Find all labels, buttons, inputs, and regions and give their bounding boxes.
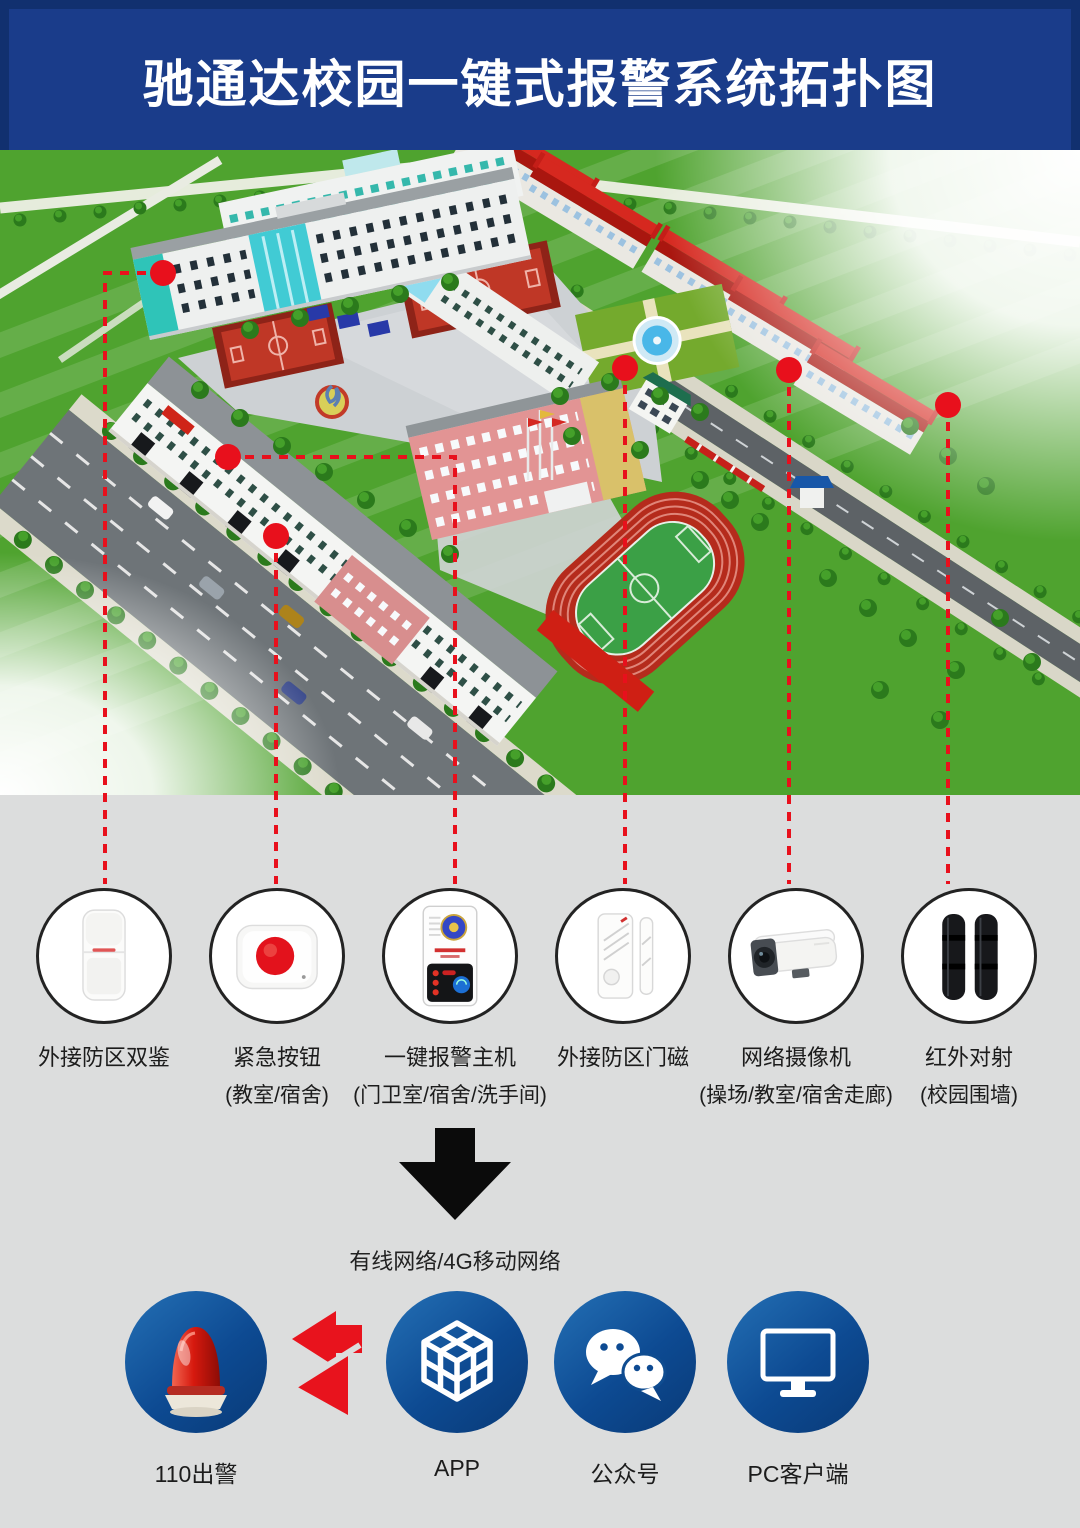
device-sublabel: (门卫室/宿舍/洗手间) xyxy=(353,1079,547,1109)
statue xyxy=(317,386,347,417)
device-label: 外接防区双鉴 xyxy=(38,1040,170,1072)
device-row: 外接防区双鉴 紧急按钮 (教室/宿舍) xyxy=(36,888,1037,1109)
device-sublabel: (校园围墙) xyxy=(920,1079,1018,1109)
device-circle xyxy=(209,888,345,1024)
network-label: 有线网络/4G移动网络 xyxy=(349,1244,560,1276)
device-label: 紧急按钮 xyxy=(233,1040,321,1072)
device-card-alarm-host: 一键报警主机 (门卫室/宿舍/洗手间) xyxy=(382,888,518,1109)
device-label: 网络摄像机 xyxy=(741,1040,851,1072)
infrared-beam-icon xyxy=(904,888,1034,1024)
device-card-infrared-beam: 红外对射 (校园围墙) xyxy=(901,888,1037,1109)
network-camera-icon xyxy=(731,888,861,1024)
page-title: 驰通达校园一键式报警系统拓扑图 xyxy=(142,43,937,117)
door-magnet-icon xyxy=(558,888,688,1024)
pir-detector-icon xyxy=(39,888,169,1024)
device-card-panic-button: 紧急按钮 (教室/宿舍) xyxy=(209,888,345,1109)
panic-button-icon xyxy=(212,888,342,1024)
wechat-icon xyxy=(554,1291,696,1433)
output-pc-client: PC客户端 xyxy=(727,1291,869,1489)
device-label: 一键报警主机 xyxy=(384,1040,516,1072)
device-circle xyxy=(555,888,691,1024)
device-circle xyxy=(728,888,864,1024)
device-card-network-camera: 网络摄像机 (操场/教室/宿舍走廊) xyxy=(728,888,864,1109)
device-sublabel: (教室/宿舍) xyxy=(225,1079,329,1109)
device-label: 外接防区门磁 xyxy=(557,1040,689,1072)
output-label: 110出警 xyxy=(155,1455,238,1489)
output-label: 公众号 xyxy=(591,1455,660,1489)
header-band: 驰通达校园一键式报警系统拓扑图 xyxy=(0,0,1080,150)
output-circle xyxy=(386,1291,528,1433)
device-circle xyxy=(382,888,518,1024)
output-label: PC客户端 xyxy=(748,1455,849,1489)
device-circle xyxy=(901,888,1037,1024)
app-cube-icon xyxy=(386,1291,528,1433)
pc-monitor-icon xyxy=(727,1291,869,1433)
output-circle xyxy=(727,1291,869,1433)
alarm-beacon-icon xyxy=(125,1291,267,1433)
output-app: APP xyxy=(386,1291,528,1482)
output-circle xyxy=(125,1291,267,1433)
output-wechat: 公众号 xyxy=(554,1291,696,1489)
fade-bottom-left xyxy=(0,510,400,795)
device-label: 红外对射 xyxy=(925,1040,1013,1072)
fade-top-right xyxy=(580,150,1080,610)
alarm-host-icon xyxy=(385,888,515,1024)
down-arrow-icon xyxy=(399,1128,511,1220)
device-sublabel: (操场/教室/宿舍走廊) xyxy=(699,1079,893,1109)
campus-aerial-illustration xyxy=(0,150,1080,795)
output-110: 110出警 xyxy=(125,1291,267,1489)
poster-page: 驰通达校园一键式报警系统拓扑图 xyxy=(0,0,1080,1528)
device-card-door-magnet: 外接防区门磁 xyxy=(555,888,691,1109)
device-circle xyxy=(36,888,172,1024)
output-circle xyxy=(554,1291,696,1433)
campus-scene xyxy=(0,150,1080,795)
device-card-pir: 外接防区双鉴 xyxy=(36,888,172,1109)
double-left-arrow-icon xyxy=(290,1305,362,1415)
output-label: APP xyxy=(434,1455,480,1482)
